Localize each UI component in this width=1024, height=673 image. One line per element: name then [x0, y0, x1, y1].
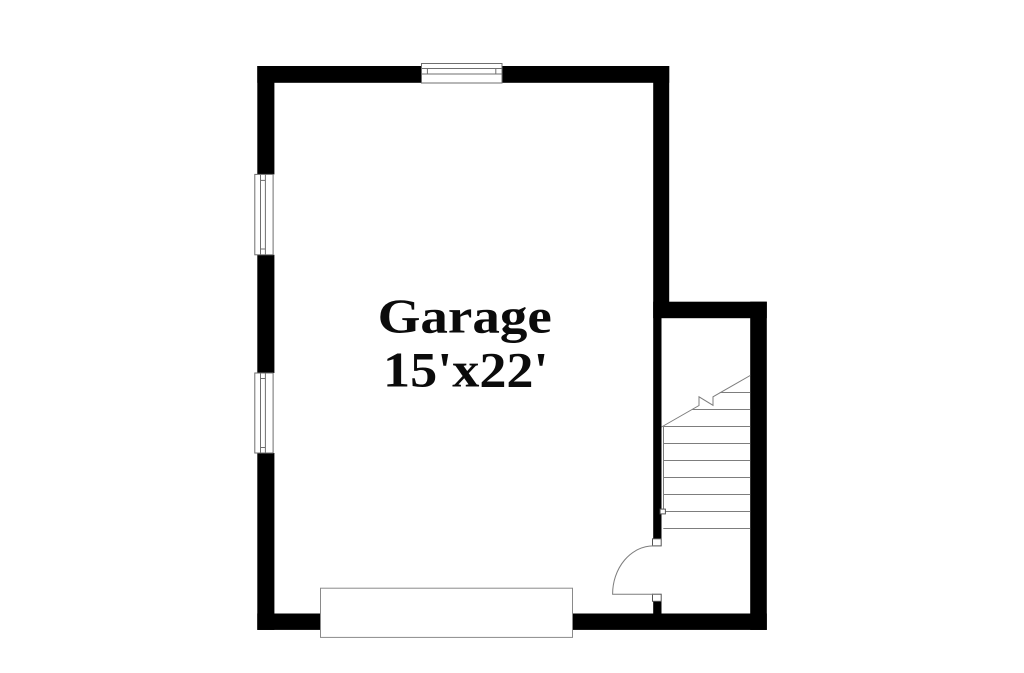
svg-text:Garage: Garage — [378, 290, 552, 344]
svg-text:15'x22': 15'x22' — [383, 343, 549, 398]
